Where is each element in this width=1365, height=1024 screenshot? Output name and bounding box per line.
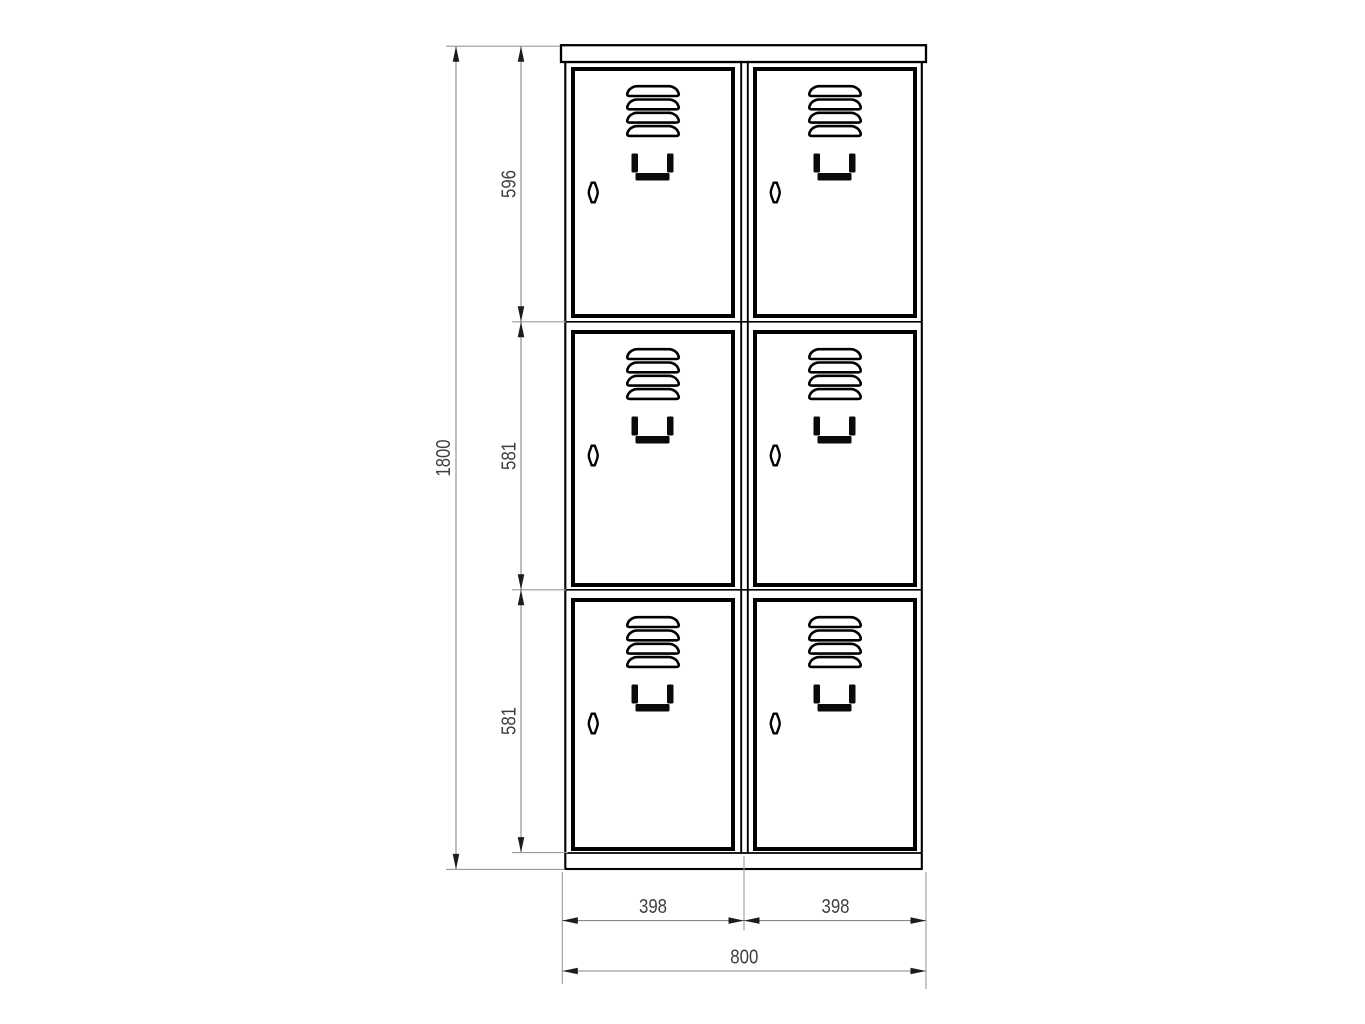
dim-label-left-door-width: 398 xyxy=(639,896,667,918)
locker-door-row2-col2 xyxy=(755,332,915,585)
locker-door-row2-col1 xyxy=(573,332,733,585)
locker-door-row3-col1 xyxy=(573,600,733,849)
locker-door-row1-col1 xyxy=(573,69,733,316)
dim-label-total-height: 1800 xyxy=(433,440,455,477)
dim-label-bottom-compartment: 581 xyxy=(499,707,521,735)
cabinet-center-divider xyxy=(741,63,748,853)
locker-door-row1-col2 xyxy=(755,69,915,316)
locker-door-row3-col2 xyxy=(755,600,915,849)
dim-total-width: 800 xyxy=(562,947,926,975)
dim-label-right-door-width: 398 xyxy=(822,896,850,918)
cabinet xyxy=(561,45,926,869)
dim-total-height: 1800 xyxy=(433,46,459,869)
cabinet-top-cap xyxy=(561,45,926,62)
dim-label-total-width: 800 xyxy=(730,947,758,969)
dim-compartment-heights: 596 581 581 xyxy=(499,46,525,852)
dim-label-top-compartment: 596 xyxy=(499,170,521,198)
locker-technical-drawing: 1800 596 581 581 398 398 xyxy=(0,0,1365,1024)
dim-label-middle-compartment: 581 xyxy=(499,442,521,470)
drawing-canvas: 1800 596 581 581 398 398 xyxy=(0,0,1365,1024)
